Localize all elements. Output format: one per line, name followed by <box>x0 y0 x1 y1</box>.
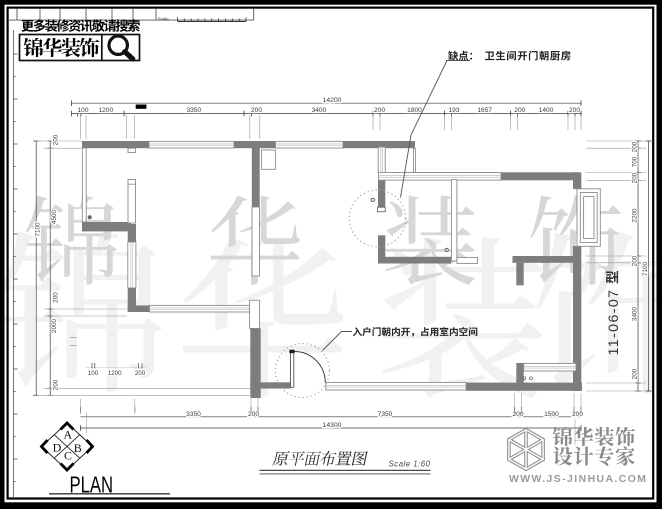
svg-text:7100: 7100 <box>642 261 649 276</box>
svg-text:1800: 1800 <box>407 107 422 114</box>
svg-text:2000: 2000 <box>51 318 58 333</box>
svg-text:3350: 3350 <box>186 411 201 418</box>
svg-text:200: 200 <box>251 107 262 114</box>
svg-text:A: A <box>63 427 72 441</box>
svg-text:D: D <box>53 441 62 455</box>
svg-text:200: 200 <box>53 134 60 145</box>
svg-text:14200: 14200 <box>323 97 342 104</box>
svg-text:1200: 1200 <box>98 107 113 114</box>
svg-text:200: 200 <box>514 107 525 114</box>
svg-text:200: 200 <box>248 411 259 418</box>
svg-text:3400: 3400 <box>632 306 639 321</box>
svg-text:4500: 4500 <box>51 209 58 224</box>
svg-text:WWW.JS-JINHUA.COM: WWW.JS-JINHUA.COM <box>509 474 647 485</box>
svg-text:3350: 3350 <box>186 107 201 114</box>
svg-text:Scale: Scale <box>158 17 170 22</box>
svg-text:200: 200 <box>632 255 639 266</box>
svg-text:200: 200 <box>53 379 60 390</box>
svg-text:200: 200 <box>512 411 523 418</box>
svg-text:1500: 1500 <box>544 411 559 418</box>
svg-text:3400: 3400 <box>312 107 327 114</box>
svg-text:100: 100 <box>88 370 99 377</box>
svg-text:Scale 1:60: Scale 1:60 <box>389 460 431 469</box>
svg-text:200: 200 <box>569 107 580 114</box>
svg-text:B: B <box>74 441 82 455</box>
svg-text:200: 200 <box>632 172 639 183</box>
svg-text:1657: 1657 <box>477 107 492 114</box>
svg-text:193: 193 <box>448 107 459 114</box>
svg-text:PLAN: PLAN <box>70 473 114 498</box>
svg-text:200: 200 <box>374 107 385 114</box>
svg-text:1200: 1200 <box>108 370 122 377</box>
svg-text:200: 200 <box>135 370 146 377</box>
svg-text:700: 700 <box>632 156 639 167</box>
svg-text:200: 200 <box>632 141 639 152</box>
svg-text:200: 200 <box>572 411 583 418</box>
svg-text:11-06-07: 11-06-07 <box>606 289 622 356</box>
svg-text:200: 200 <box>632 368 639 379</box>
svg-text:2200: 2200 <box>632 208 639 223</box>
svg-text:1400: 1400 <box>539 107 554 114</box>
svg-text:14300: 14300 <box>323 422 342 429</box>
svg-text:7350: 7350 <box>378 411 393 418</box>
svg-text:7100: 7100 <box>35 222 42 237</box>
svg-text:C: C <box>64 449 72 463</box>
svg-text:100: 100 <box>77 107 88 114</box>
svg-text:200: 200 <box>53 292 60 303</box>
